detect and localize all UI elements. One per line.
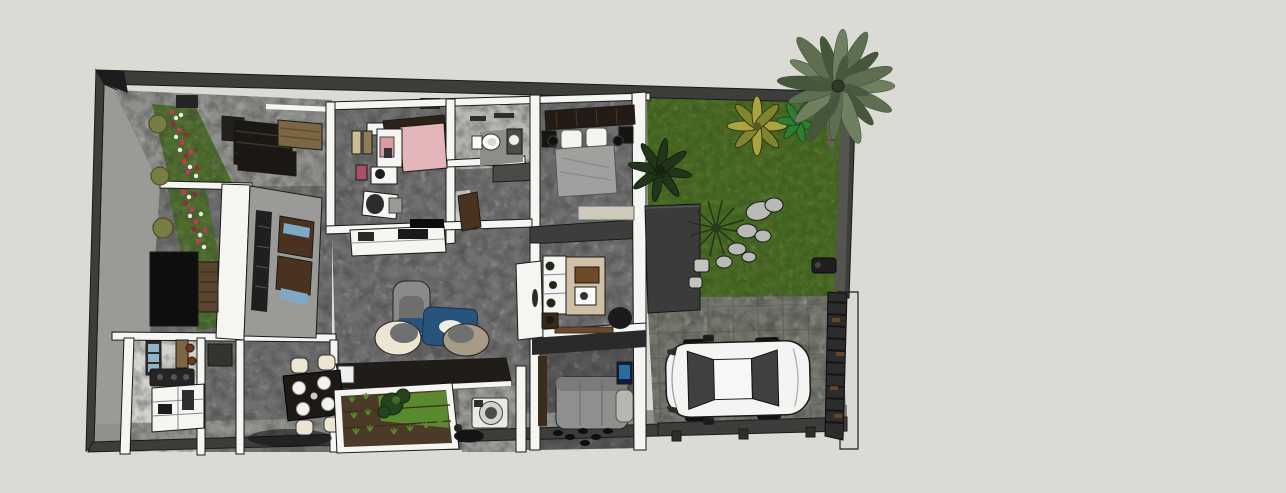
center-bowl [311,393,318,400]
master-blanket [555,145,617,197]
armchair-taupe-opening [448,325,474,343]
study-frame-figure [580,292,588,300]
wood-slat-bench [198,262,218,312]
bush [153,218,173,238]
bush [149,115,167,133]
entry-facade [244,186,322,338]
hallway [458,192,481,231]
kitchen-bottles [182,390,194,410]
toilet-tank [472,136,482,149]
glass-pane [148,344,159,352]
study-chair [608,307,632,329]
car [665,332,811,426]
shelf-plant [547,299,556,308]
speaker-cone [546,316,554,324]
study-door [516,261,543,340]
plate [318,377,331,390]
vegetable-planter [334,383,459,453]
planter-tree-highlight [392,396,400,404]
wall-tv [410,219,444,228]
bedroom1-bed-item [384,148,392,158]
nightstand-item [375,169,385,179]
banana-plant [727,96,787,156]
dining-chair [291,358,308,373]
guest-sofa-pillow [616,390,633,422]
dining-chair [318,355,335,370]
wooden-table [278,120,322,150]
plate [297,403,310,416]
glass-pane [148,354,159,362]
master-lamp-right [613,136,623,146]
study-desk-edge [555,327,613,333]
wall-pink-left [326,102,335,234]
kitchen-pot [186,344,194,352]
wall-frame-tan [352,131,361,154]
fence-post [806,427,815,437]
dining-chair [296,420,313,435]
wall-pantry-right [236,340,244,454]
washer-panel [474,400,483,407]
sink-bowl [509,135,520,146]
guest-tv-screen [619,365,630,379]
wall-frame-brown [363,131,372,154]
tv-cabinet [150,252,198,326]
shelf-plant [549,281,557,289]
guest-left-cabinet [538,356,547,426]
render-canvas[interactable] [0,0,1286,493]
wall-utility-right [516,366,526,452]
study-door-handle [532,289,538,307]
toilet-seat [488,138,497,146]
armchair-cream-opening [390,323,418,343]
kitchen-wood-shelf [176,340,188,368]
windshield [687,351,715,410]
pantry-cabinet [208,344,232,366]
study-frame-brown [575,267,599,283]
study-desk [566,257,605,315]
bedroom1-desk-box [389,198,402,213]
ceiling-beam [494,113,514,118]
ceiling-beam [470,116,486,121]
roof-column-cap [176,95,198,108]
bush [151,167,169,185]
fence-post [672,431,681,441]
floorplan-3d-view[interactable] [0,0,1286,493]
laundry-item [454,424,462,432]
master-pillow-left [561,130,582,149]
kitchen-pot [188,357,196,365]
bedroom1-bed-blanket [400,123,447,172]
palm-crown-center [832,80,844,92]
plate [293,382,306,395]
planter-tree [378,406,390,418]
plate [322,398,335,411]
master-bench [578,206,634,220]
car-roof [713,359,752,400]
shadow-slab-wall [645,204,700,313]
gate-lock-knob [815,262,821,268]
rear-window [751,350,778,407]
hall-door-leaf [458,192,481,231]
kitchen-item [158,404,172,414]
side-mirror [703,418,714,425]
fence-post [739,429,748,439]
console-tv [398,229,428,239]
master-pillow-right [586,128,607,147]
master-lamp-left [548,136,558,146]
console-item [358,232,374,241]
wall-frame-pink [356,165,367,180]
bedroom1-chair [366,194,384,214]
shelf-plant [546,262,555,271]
washer-drum [485,407,497,419]
side-mirror [703,335,714,342]
dining-floor-shadow [248,429,332,447]
